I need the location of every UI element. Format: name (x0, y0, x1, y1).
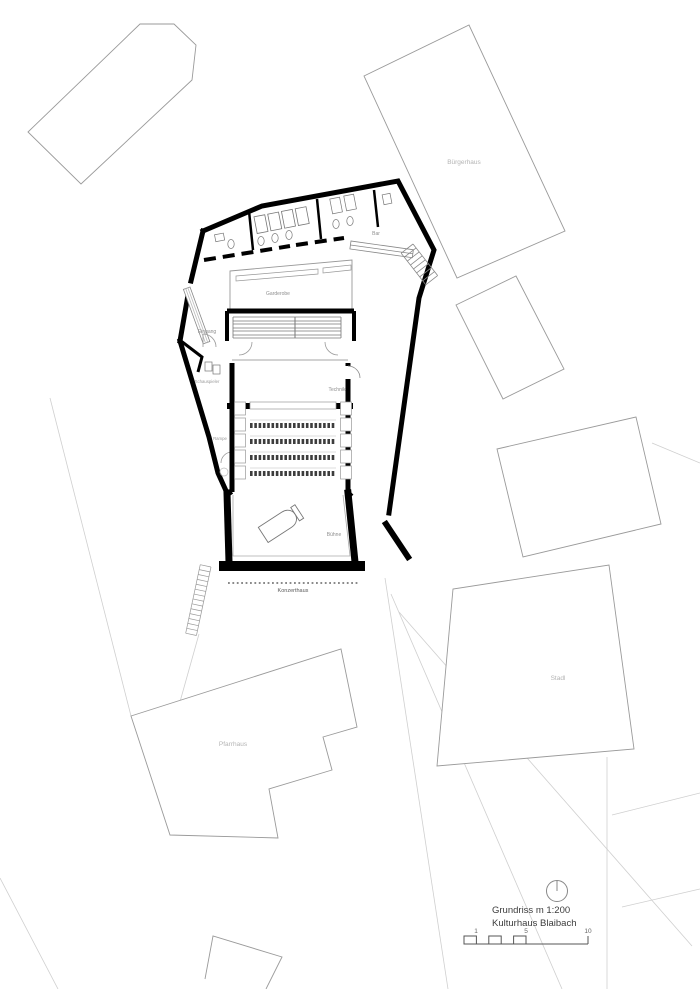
rampe-label: Rampe (213, 436, 227, 441)
buergerhaus-label: Bürgerhaus (447, 159, 481, 166)
foyer-stairs (233, 317, 341, 338)
scale-tick-1: 1 (474, 928, 478, 935)
plan-sheet: Bürgerhaus Stadl Pfarrhaus (0, 0, 700, 989)
building-east-small (456, 276, 564, 399)
scale-bar (464, 936, 588, 944)
building-northwest (28, 24, 196, 184)
entrance-ramp (183, 287, 209, 344)
stadl-label: Stadl (551, 675, 566, 682)
seating-rows (235, 402, 352, 479)
building-buergerhaus (364, 25, 565, 278)
entrance-area: Eingang Schauspieler Rampe (181, 287, 232, 476)
buehne-label: Bühne (327, 532, 342, 538)
konzerthaus-label: Konzerthaus (278, 588, 309, 594)
site-plan: Bürgerhaus Stadl Pfarrhaus (0, 0, 700, 989)
stage: Bühne (233, 495, 350, 556)
concert-hall: Technik (226, 363, 360, 496)
wc-stalls (254, 207, 309, 234)
schauspieler-label: Schauspieler (195, 379, 220, 384)
building-stadl (437, 565, 634, 766)
scale-tick-5: 5 (524, 928, 528, 935)
bar-label: Bar (372, 231, 380, 237)
technik-label: Technik (329, 387, 346, 393)
garderobe-block: Garderobe (227, 260, 354, 360)
garderobe-label: Garderobe (266, 291, 290, 297)
building-east-lower (497, 417, 661, 557)
pfarrhaus-label: Pfarrhaus (219, 741, 248, 748)
grand-piano-icon (258, 504, 304, 543)
konzerthaus-dashline: Konzerthaus (228, 583, 358, 594)
title-line2: Kulturhaus Blaibach (492, 918, 577, 929)
scale-tick-10: 10 (584, 928, 592, 935)
exterior-stairs-southwest (186, 565, 211, 636)
title-line1: Grundriss m 1:200 (492, 905, 570, 916)
building-southwest-partial (205, 936, 282, 989)
bar-counter (350, 241, 414, 258)
north-arrow-icon (547, 881, 568, 902)
eingang-label: Eingang (198, 329, 217, 335)
